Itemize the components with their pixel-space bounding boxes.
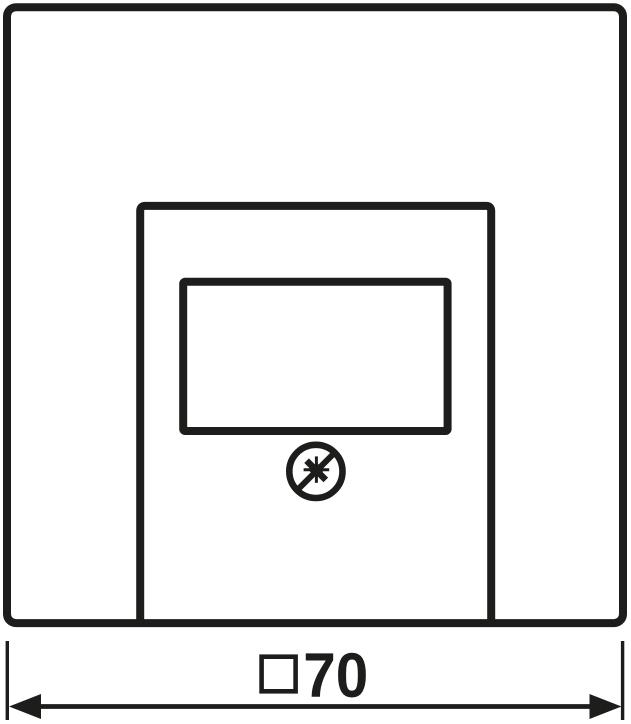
svg-text:70: 70 bbox=[303, 641, 368, 711]
